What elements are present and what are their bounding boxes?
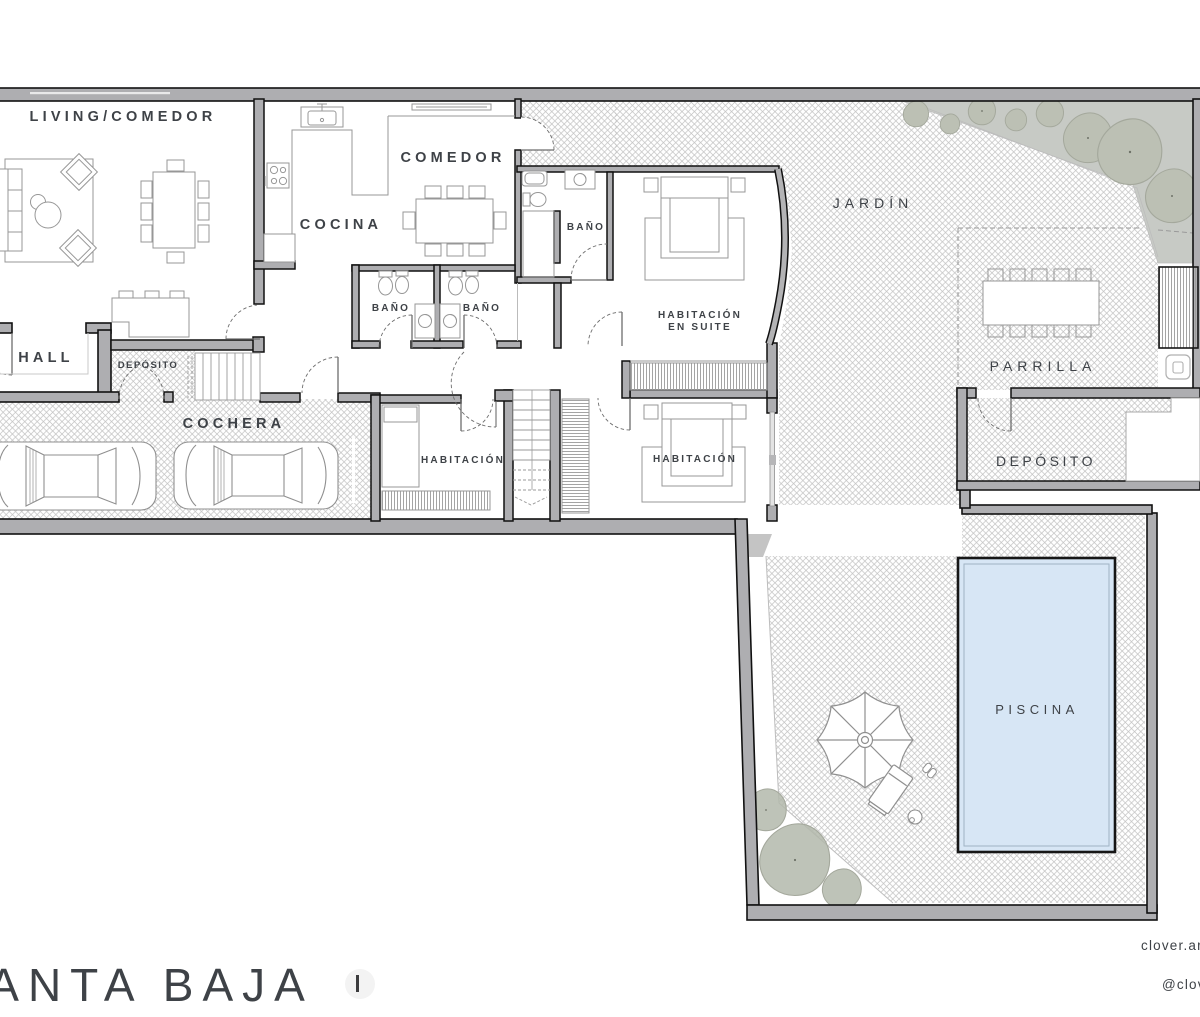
svg-text:PISCINA: PISCINA [995,702,1079,717]
svg-text:HABITACIÓN: HABITACIÓN [421,453,505,466]
svg-text:JARDÍN: JARDÍN [833,195,914,211]
svg-text:DEPÓSITO: DEPÓSITO [996,453,1096,469]
svg-text:COCHERA: COCHERA [183,416,286,432]
svg-text:PARRILLA: PARRILLA [990,358,1097,374]
svg-text:BAÑO: BAÑO [372,301,410,314]
svg-text:LIVING/COMEDOR: LIVING/COMEDOR [30,109,217,125]
svg-text:COCINA: COCINA [300,217,382,233]
svg-text:BAÑO: BAÑO [567,220,605,233]
svg-text:HABITACIÓN: HABITACIÓN [653,452,737,465]
svg-text:@clover.arq: @clover.arq [1162,977,1200,992]
svg-text:DEPÓSITO: DEPÓSITO [118,359,179,371]
svg-text:clover.arq: clover.arq [1141,938,1200,953]
svg-text:HALL: HALL [18,350,73,366]
svg-text:COMEDOR: COMEDOR [400,150,505,166]
svg-text:EN SUITE: EN SUITE [668,322,732,333]
svg-text:BAÑO: BAÑO [463,301,501,314]
svg-text:PLANTA BAJA: PLANTA BAJA [0,959,314,1011]
svg-text:HABITACIÓN: HABITACIÓN [658,308,742,321]
